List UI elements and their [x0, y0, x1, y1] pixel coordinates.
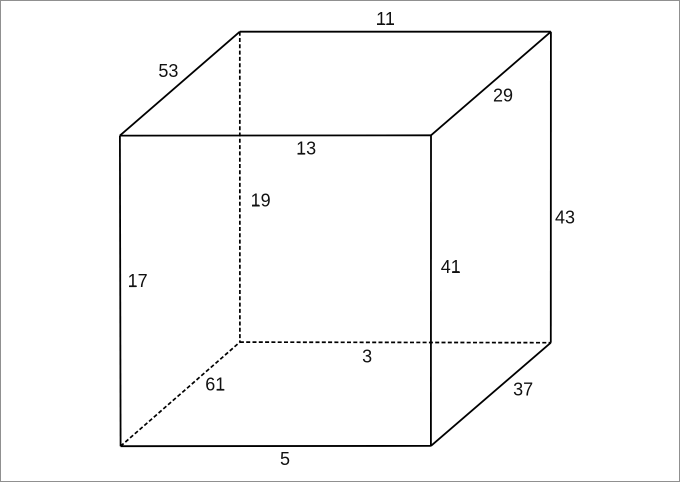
svg-text:37: 37 [513, 380, 533, 400]
svg-text:11: 11 [376, 9, 395, 29]
svg-text:19: 19 [251, 190, 271, 210]
svg-text:61: 61 [205, 375, 225, 395]
svg-text:29: 29 [493, 85, 513, 105]
svg-text:53: 53 [158, 61, 178, 81]
svg-text:43: 43 [555, 207, 575, 227]
svg-text:17: 17 [128, 271, 148, 291]
svg-text:13: 13 [296, 139, 316, 159]
svg-text:41: 41 [441, 257, 461, 277]
svg-text:5: 5 [280, 449, 290, 469]
svg-text:3: 3 [362, 347, 372, 367]
